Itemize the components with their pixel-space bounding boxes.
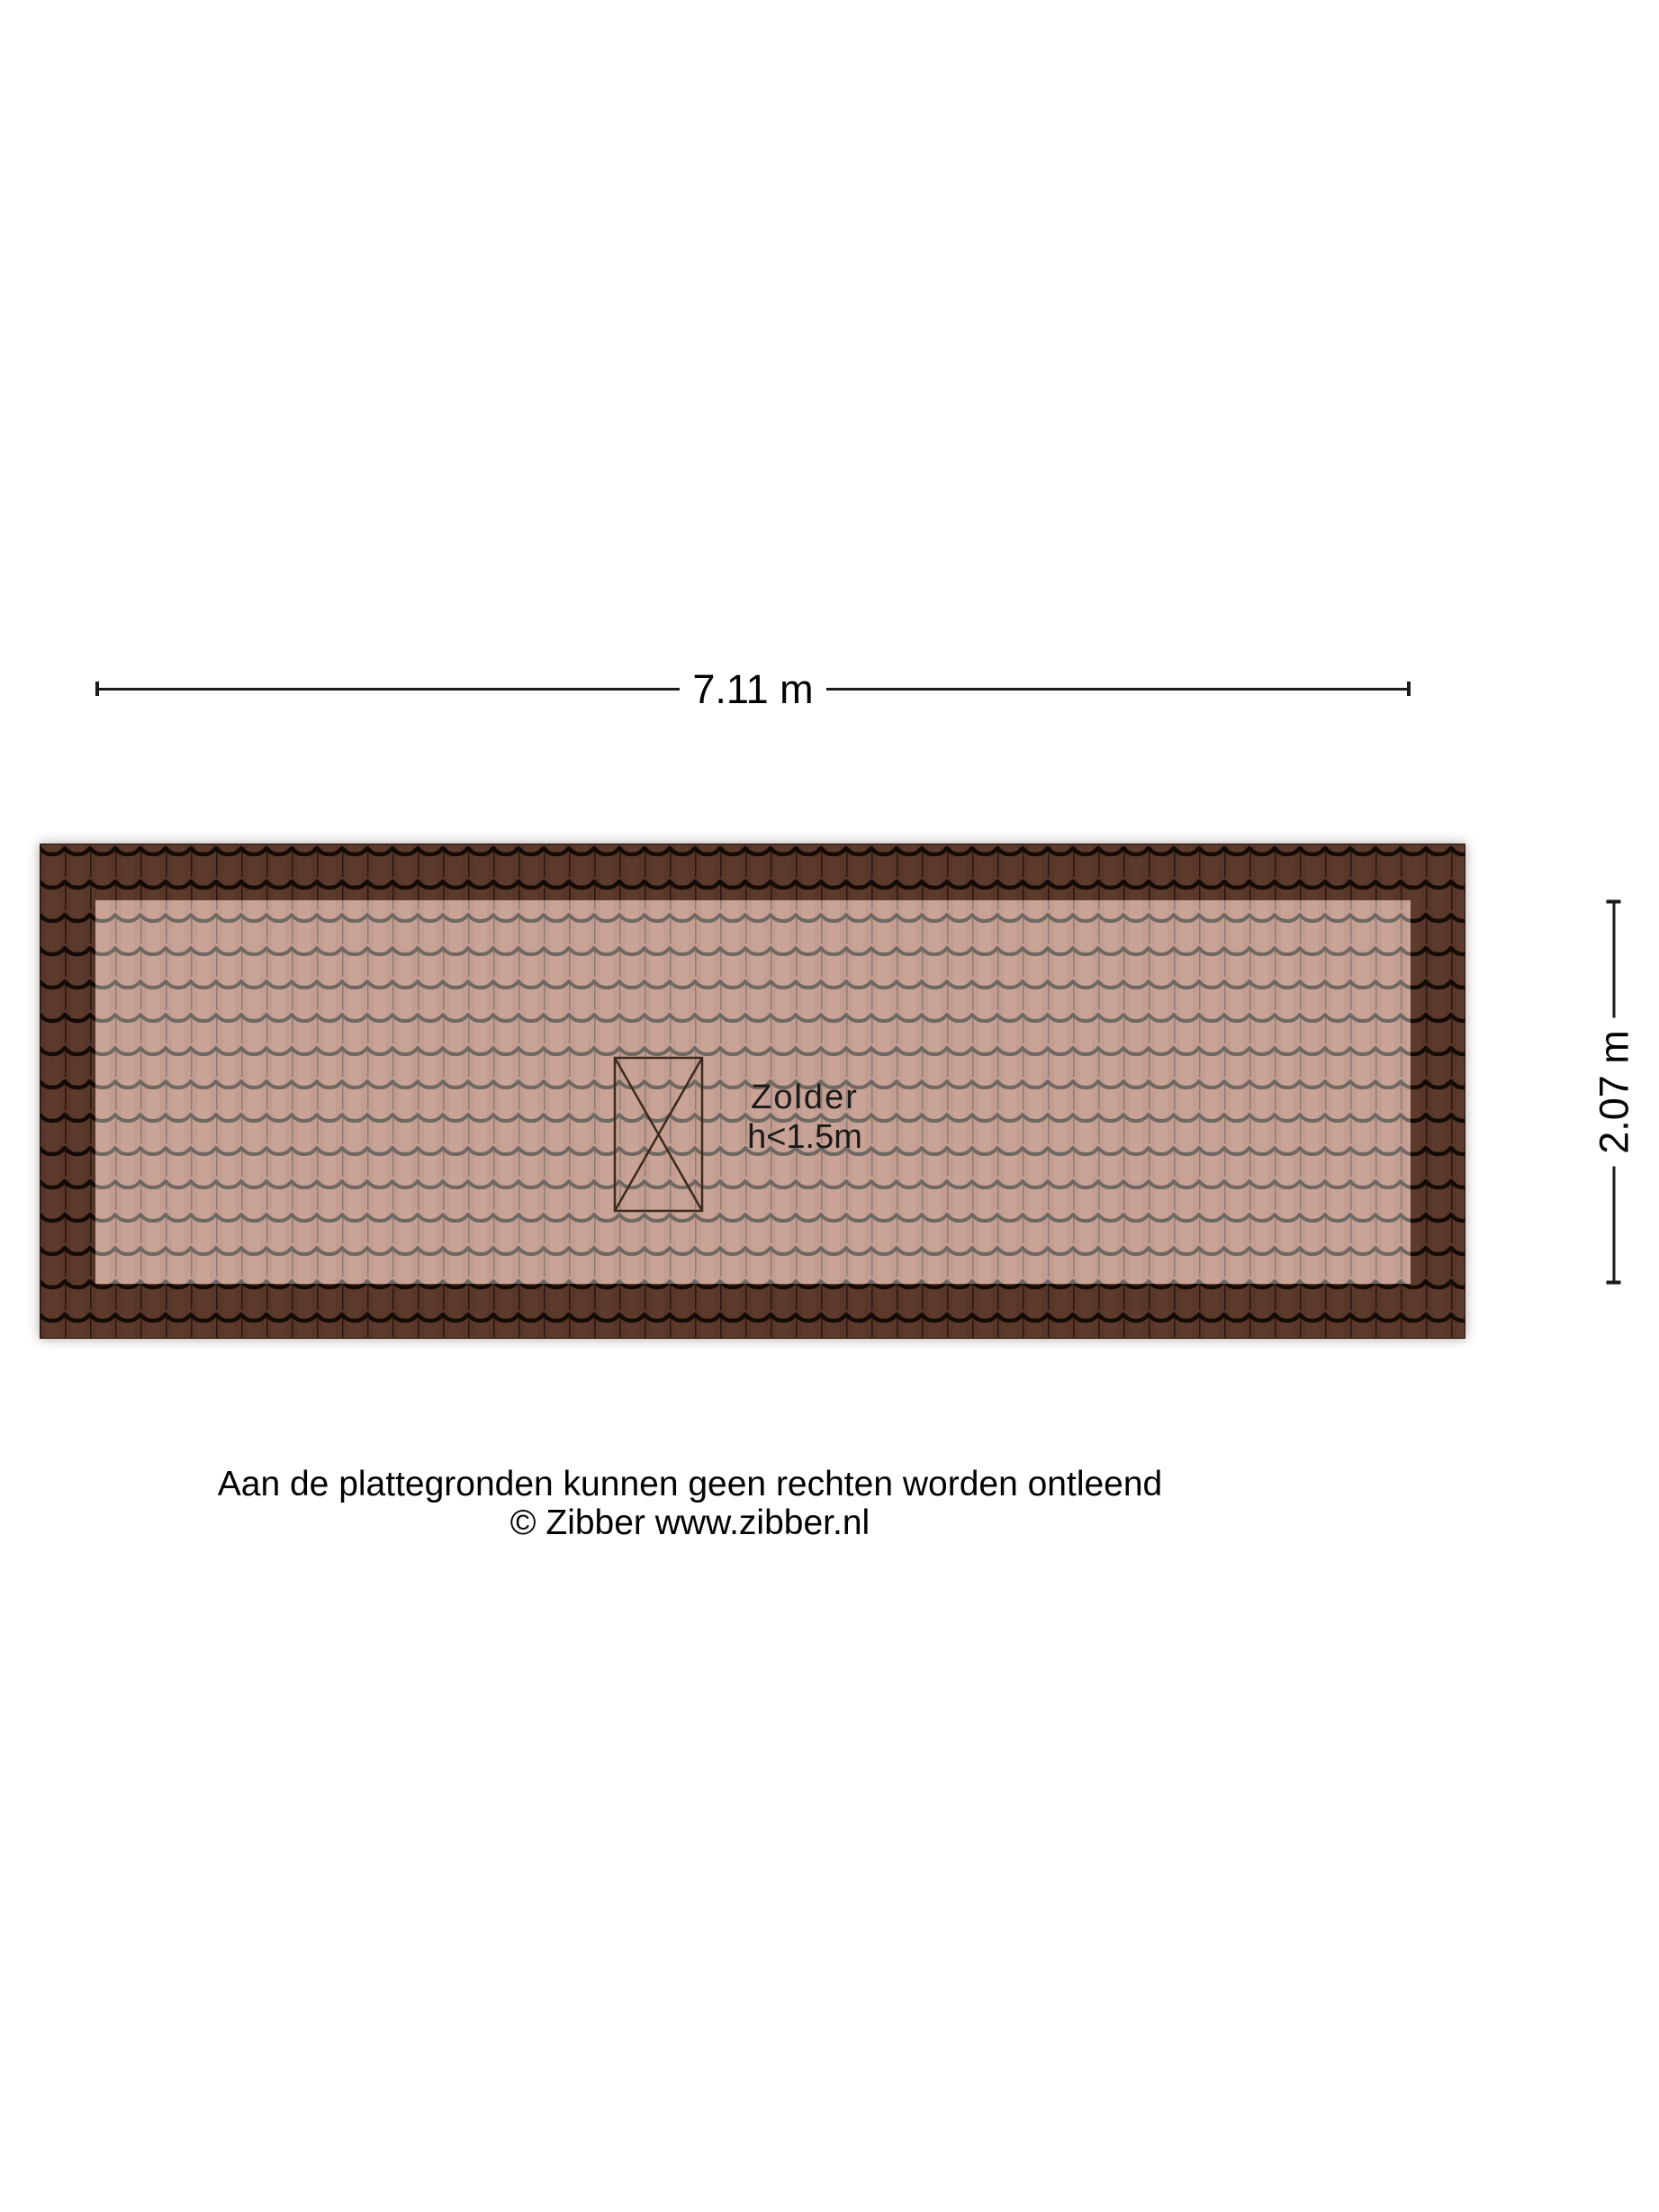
dimension-line-segment [1612, 1167, 1615, 1281]
width-dimension-label: 7.11 m [680, 669, 825, 709]
room-height-label: h<1.5m [747, 1118, 862, 1156]
roof-plan-svg: Zolder h<1.5m [40, 844, 1465, 1339]
copyright-line: © Zibber www.zibber.nl [0, 1503, 1380, 1542]
room-name-label: Zolder [751, 1079, 859, 1116]
height-dimension-label: 2.07 m [1593, 1017, 1634, 1167]
footer: Aan de plattegronden kunnen geen rechten… [0, 1465, 1380, 1542]
disclaimer-line: Aan de plattegronden kunnen geen rechten… [0, 1465, 1380, 1503]
dimension-line-segment [826, 688, 1407, 691]
width-dimension: 7.11 m [95, 676, 1411, 701]
dimension-line-segment [99, 688, 680, 691]
dimension-tick-right [1407, 682, 1411, 696]
dimension-tick-top [1607, 899, 1621, 903]
dimension-tick-bottom [1607, 1281, 1621, 1285]
height-dimension: 2.07 m [1601, 900, 1627, 1285]
floorplan-page: 7.11 m [0, 0, 1659, 2212]
roof-plan: Zolder h<1.5m [40, 844, 1465, 1339]
dimension-line-segment [1612, 903, 1615, 1017]
